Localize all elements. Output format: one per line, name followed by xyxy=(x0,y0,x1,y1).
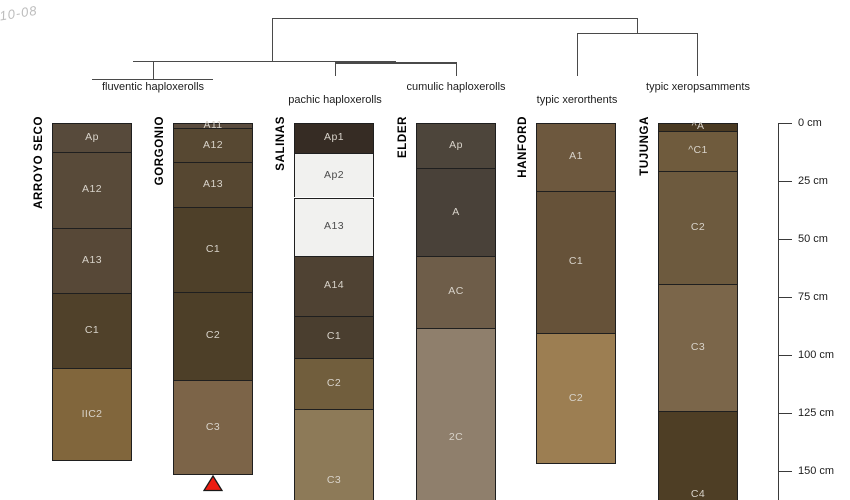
horizon-label: C2 xyxy=(536,392,616,405)
horizon-label: C1 xyxy=(536,255,616,268)
series-label-arroyo-seco: ARROYO SECO xyxy=(31,116,47,209)
tree-line xyxy=(272,18,273,62)
horizon-label: 2C xyxy=(416,431,496,444)
tree-line xyxy=(577,33,578,76)
horizon-label: Ap xyxy=(52,131,132,144)
depth-tick-label: 100 cm xyxy=(798,348,850,362)
depth-tick-label: 50 cm xyxy=(798,232,850,246)
depth-tick xyxy=(778,239,792,240)
horizon-label: C2 xyxy=(173,329,253,342)
depth-tick xyxy=(778,355,792,356)
horizon-label: A xyxy=(416,206,496,219)
horizon-label: C1 xyxy=(52,324,132,337)
tree-label-pachic-haploxerolls: pachic haploxerolls xyxy=(255,94,415,106)
tree-line xyxy=(335,62,336,76)
watermark-date: -10-08 xyxy=(0,3,38,25)
tree-line xyxy=(697,33,698,76)
horizon-band-2c xyxy=(416,328,496,500)
horizon-band-c4 xyxy=(658,411,738,500)
horizon-label: IIC2 xyxy=(52,408,132,421)
tree-line xyxy=(577,33,698,34)
tree-line xyxy=(92,79,213,80)
tree-label-fluventic-haploxerolls: fluventic haploxerolls xyxy=(73,81,233,93)
tree-line xyxy=(637,18,638,34)
horizon-label: AC xyxy=(416,285,496,298)
horizon-label: A13 xyxy=(173,178,253,191)
series-label-tujunga: TUJUNGA xyxy=(637,116,653,176)
depth-axis-line xyxy=(778,123,779,500)
horizon-label: A13 xyxy=(52,254,132,267)
depth-tick-label: 75 cm xyxy=(798,290,850,304)
horizon-label: Ap xyxy=(416,139,496,152)
depth-tick-label: 0 cm xyxy=(798,116,850,130)
horizon-label: C1 xyxy=(294,330,374,343)
horizon-label: C3 xyxy=(173,421,253,434)
depth-tick-label: 150 cm xyxy=(798,464,850,478)
tree-line xyxy=(272,18,638,19)
horizon-label: C1 xyxy=(173,243,253,256)
depth-tick-label: 125 cm xyxy=(798,406,850,420)
horizon-label: Ap1 xyxy=(294,131,374,144)
horizon-label: ^C1 xyxy=(658,144,738,157)
horizon-label: C2 xyxy=(658,221,738,234)
series-label-hanford: HANFORD xyxy=(515,116,531,178)
horizon-label: Ap2 xyxy=(294,169,374,182)
tree-line xyxy=(153,61,154,79)
horizon-label: A13 xyxy=(294,220,374,233)
series-label-elder: ELDER xyxy=(395,116,411,158)
horizon-label: A12 xyxy=(173,139,253,152)
horizon-label: C3 xyxy=(658,341,738,354)
soil-profile-figure: -10-08 fluventic haploxerolls pachic hap… xyxy=(0,0,850,500)
horizon-label: A12 xyxy=(52,183,132,196)
tree-line xyxy=(456,62,457,76)
depth-tick xyxy=(778,413,792,414)
horizon-label: C3 xyxy=(294,474,374,487)
series-label-salinas: SALINAS xyxy=(273,116,289,171)
horizon-label: A1 xyxy=(536,150,616,163)
tree-label-typic-xeropsamments: typic xeropsamments xyxy=(618,81,778,93)
red-triangle-marker xyxy=(203,475,223,492)
horizon-label: A14 xyxy=(294,279,374,292)
horizon-label: C4 xyxy=(658,488,738,500)
depth-tick xyxy=(778,123,792,124)
depth-tick xyxy=(778,297,792,298)
tree-label-typic-xerorthents: typic xerorthents xyxy=(497,94,657,106)
depth-tick-label: 25 cm xyxy=(798,174,850,188)
depth-tick xyxy=(778,471,792,472)
tree-label-cumulic-haploxerolls: cumulic haploxerolls xyxy=(376,81,536,93)
horizon-label: C2 xyxy=(294,377,374,390)
depth-tick xyxy=(778,181,792,182)
series-label-gorgonio: GORGONIO xyxy=(152,116,168,185)
tree-line xyxy=(335,62,456,63)
